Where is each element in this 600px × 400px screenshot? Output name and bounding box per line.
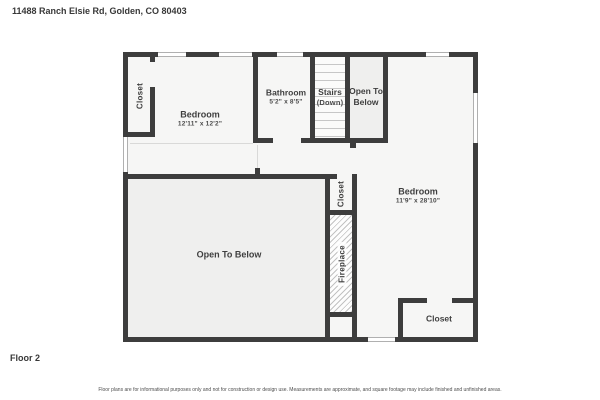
room-label-closet-bottom-right: Closet bbox=[426, 314, 452, 325]
wall bbox=[186, 52, 219, 57]
window bbox=[123, 137, 128, 172]
window bbox=[368, 337, 395, 342]
window bbox=[277, 52, 303, 57]
floorplan-page: 11488 Ranch Elsie Rd, Golden, CO 80403 bbox=[0, 0, 600, 400]
wall bbox=[398, 298, 403, 342]
ceiling-break-line bbox=[130, 143, 253, 144]
room-name: Bathroom bbox=[266, 88, 306, 98]
room-label-bedroom-right: Bedroom 11'9" x 28'10" bbox=[396, 186, 440, 205]
wall bbox=[310, 57, 315, 143]
window bbox=[426, 52, 449, 57]
wall bbox=[253, 57, 258, 143]
room-label-open-to-below-upper: Open To Below bbox=[344, 86, 388, 108]
wall bbox=[123, 337, 368, 342]
room-dimensions: 11'9" x 28'10" bbox=[396, 198, 440, 206]
room-label-closet-upper-left: Closet bbox=[136, 83, 145, 109]
room-label-stairs: Stairs (Down) bbox=[317, 87, 344, 107]
stairs-direction: (Down) bbox=[317, 98, 344, 107]
room-dimensions: 12'11" x 12'2" bbox=[178, 121, 222, 129]
window bbox=[219, 52, 252, 57]
room-name: Open To Below bbox=[344, 86, 388, 108]
window bbox=[158, 52, 186, 57]
wall bbox=[123, 52, 128, 137]
wall bbox=[395, 337, 478, 342]
wall bbox=[325, 210, 357, 215]
wall bbox=[350, 143, 356, 148]
disclaimer-text: Floor plans are for informational purpos… bbox=[0, 387, 600, 393]
room-label-bathroom: Bathroom 5'2" x 8'5" bbox=[266, 88, 306, 107]
wall bbox=[150, 87, 155, 132]
room-label-open-to-below-main: Open To Below bbox=[197, 249, 262, 260]
room-label-closet-middle: Closet bbox=[337, 181, 346, 207]
wall bbox=[301, 138, 388, 143]
room-label-fireplace: Fireplace bbox=[338, 242, 347, 286]
room-name: Bedroom bbox=[398, 186, 438, 196]
wall bbox=[303, 52, 426, 57]
wall bbox=[253, 138, 273, 143]
room-label-bedroom-upper: Bedroom 12'11" x 12'2" bbox=[178, 109, 222, 128]
window bbox=[473, 93, 478, 143]
wall bbox=[325, 312, 357, 317]
wall bbox=[123, 174, 337, 179]
floorplan-drawing: Closet Bedroom 12'11" x 12'2" Bathroom 5… bbox=[0, 0, 600, 400]
wall bbox=[398, 298, 427, 303]
floor-label: Floor 2 bbox=[10, 353, 40, 363]
room-dimensions: 5'2" x 8'5" bbox=[266, 98, 306, 106]
wall bbox=[473, 52, 478, 93]
wall bbox=[352, 179, 357, 342]
room-name: Bedroom bbox=[180, 109, 220, 119]
wall bbox=[473, 143, 478, 342]
wall bbox=[150, 57, 155, 62]
wall bbox=[123, 172, 128, 342]
wall bbox=[452, 298, 478, 303]
room-name: Stairs bbox=[318, 87, 342, 97]
